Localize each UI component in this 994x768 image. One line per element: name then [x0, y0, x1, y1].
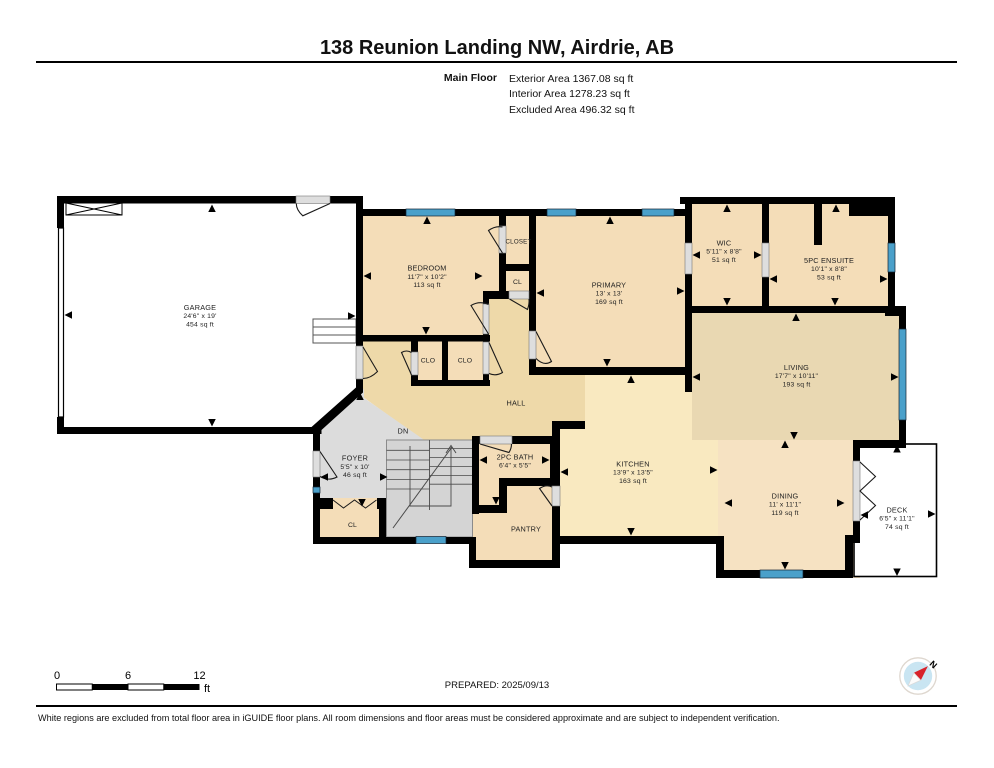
svg-text:5'5" x 10': 5'5" x 10': [340, 464, 369, 471]
svg-text:6'5" x 11'1": 6'5" x 11'1": [879, 516, 915, 523]
svg-text:163 sq ft: 163 sq ft: [619, 478, 647, 485]
svg-text:CLO: CLO: [458, 358, 473, 365]
svg-text:PANTRY: PANTRY: [511, 525, 541, 534]
svg-text:KITCHEN: KITCHEN: [616, 460, 649, 469]
svg-text:53 sq ft: 53 sq ft: [817, 274, 841, 281]
svg-text:HALL: HALL: [506, 399, 525, 408]
svg-text:CL: CL: [348, 522, 357, 529]
svg-text:CLO: CLO: [421, 358, 436, 365]
svg-text:119 sq ft: 119 sq ft: [771, 510, 798, 517]
svg-text:74 sq ft: 74 sq ft: [885, 524, 909, 531]
svg-text:CL: CL: [513, 279, 522, 286]
svg-text:6'4" x 5'5": 6'4" x 5'5": [499, 463, 531, 470]
svg-text:DN: DN: [398, 427, 409, 436]
svg-text:LIVING: LIVING: [784, 363, 809, 372]
svg-text:FOYER: FOYER: [342, 454, 368, 463]
svg-text:17'7" x 10'11": 17'7" x 10'11": [775, 373, 819, 380]
svg-text:GARAGE: GARAGE: [184, 303, 216, 312]
svg-text:11' x 11'1": 11' x 11'1": [769, 502, 802, 509]
svg-text:WIC: WIC: [717, 239, 732, 248]
svg-text:193 sq ft: 193 sq ft: [783, 381, 811, 388]
svg-text:113 sq ft: 113 sq ft: [413, 282, 440, 289]
svg-text:2PC BATH: 2PC BATH: [497, 453, 534, 462]
svg-text:13' x 13': 13' x 13': [596, 291, 623, 298]
svg-text:11'7" x 10'2": 11'7" x 10'2": [407, 274, 447, 281]
svg-text:10'1" x 8'8": 10'1" x 8'8": [811, 266, 847, 273]
svg-text:DINING: DINING: [772, 492, 799, 501]
svg-text:PRIMARY: PRIMARY: [592, 281, 627, 290]
svg-text:DECK: DECK: [886, 506, 907, 515]
svg-text:454 sq ft: 454 sq ft: [186, 321, 214, 328]
svg-text:46 sq ft: 46 sq ft: [343, 472, 367, 479]
svg-text:169 sq ft: 169 sq ft: [595, 299, 623, 306]
svg-text:5PC ENSUITE: 5PC ENSUITE: [804, 256, 854, 265]
svg-text:24'6" x 19': 24'6" x 19': [183, 313, 216, 320]
svg-text:13'9" x 13'5": 13'9" x 13'5": [613, 470, 653, 477]
svg-text:BEDROOM: BEDROOM: [407, 264, 446, 273]
svg-text:CLOSET: CLOSET: [506, 239, 532, 246]
svg-text:5'11" x 8'8": 5'11" x 8'8": [706, 249, 742, 256]
svg-text:51 sq ft: 51 sq ft: [712, 257, 736, 264]
